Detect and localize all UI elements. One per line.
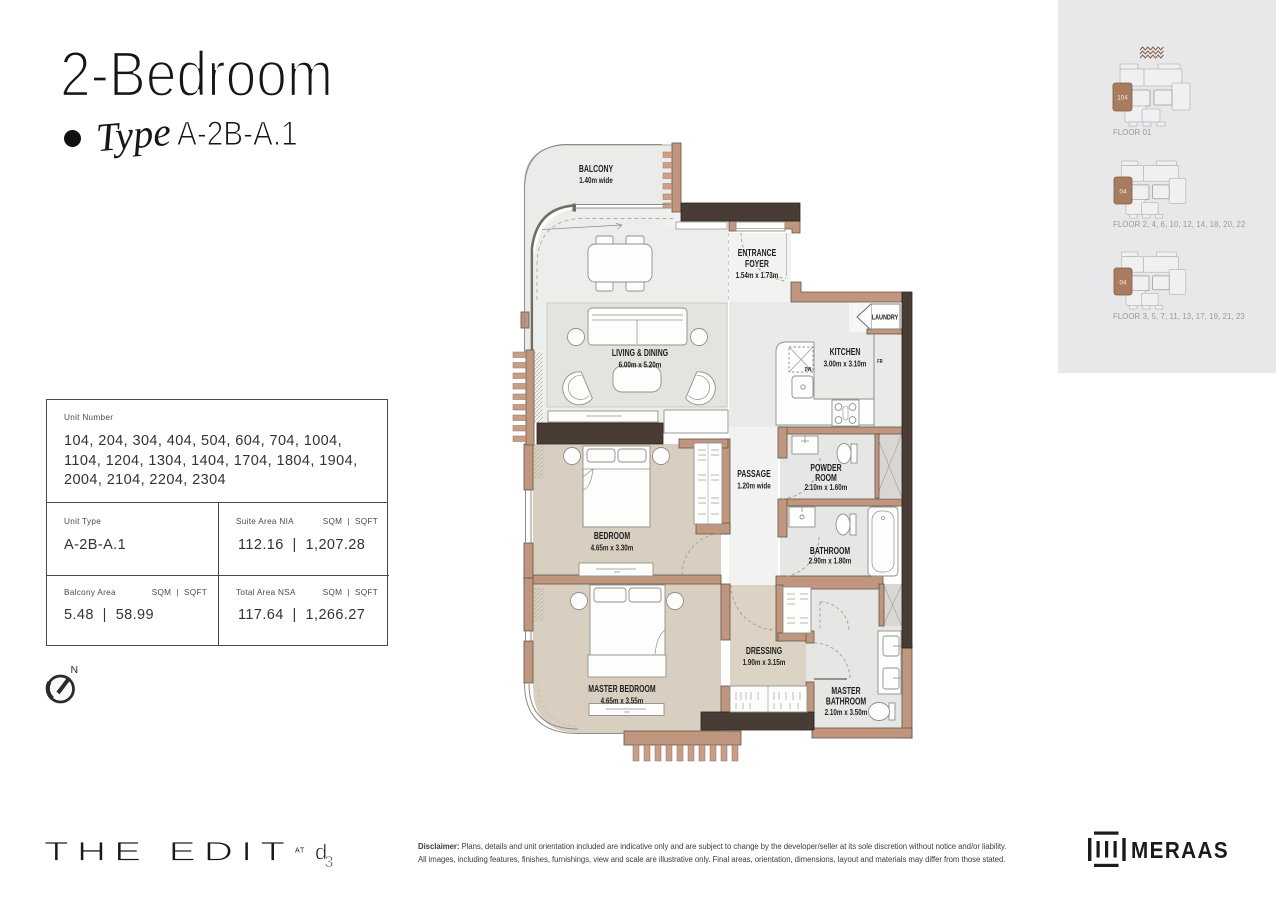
svg-text:FOYER: FOYER	[745, 258, 769, 270]
svg-text:LIVING & DINING: LIVING & DINING	[612, 347, 668, 359]
svg-text:3.00m x 3.10m: 3.00m x 3.10m	[824, 359, 867, 369]
svg-text:FR: FR	[877, 358, 883, 365]
svg-text:2.10m x 3.50m: 2.10m x 3.50m	[825, 707, 868, 717]
svg-text:1.40m wide: 1.40m wide	[579, 175, 613, 185]
svg-text:MERAAS: MERAAS	[1131, 837, 1229, 864]
svg-text:BATHROOM: BATHROOM	[826, 695, 866, 707]
svg-text:104: 104	[1117, 95, 1128, 102]
svg-text:04: 04	[1119, 280, 1127, 287]
svg-text:PASSAGE: PASSAGE	[737, 468, 771, 480]
svg-text:04: 04	[1119, 189, 1127, 196]
svg-text:2.10m x 1.60m: 2.10m x 1.60m	[805, 482, 848, 492]
svg-text:1.54m x 1.73m: 1.54m x 1.73m	[736, 270, 779, 280]
svg-text:MASTER BEDROOM: MASTER BEDROOM	[588, 683, 655, 695]
svg-text:1.20m wide: 1.20m wide	[737, 481, 771, 491]
svg-text:DW: DW	[805, 366, 812, 373]
svg-text:THE EDIT: THE EDIT	[44, 837, 293, 867]
svg-text:4.65m x 3.30m: 4.65m x 3.30m	[591, 543, 634, 553]
svg-text:BALCONY: BALCONY	[579, 163, 613, 175]
svg-text:3: 3	[325, 854, 334, 871]
svg-text:ENTRANCE: ENTRANCE	[738, 247, 777, 259]
svg-text:AT: AT	[295, 848, 305, 855]
svg-text:2.90m x 1.80m: 2.90m x 1.80m	[809, 556, 852, 566]
svg-text:KITCHEN: KITCHEN	[830, 346, 861, 358]
svg-text:1.90m x 3.15m: 1.90m x 3.15m	[743, 657, 786, 667]
svg-text:BEDROOM: BEDROOM	[594, 530, 630, 542]
svg-text:LAUNDRY: LAUNDRY	[872, 314, 899, 322]
svg-text:DRESSING: DRESSING	[746, 645, 782, 657]
svg-text:BATHROOM: BATHROOM	[810, 545, 850, 557]
svg-text:6.00m x 5.20m: 6.00m x 5.20m	[619, 360, 662, 370]
svg-text:4.65m x 3.55m: 4.65m x 3.55m	[601, 696, 644, 706]
svg-text:N: N	[71, 664, 79, 676]
